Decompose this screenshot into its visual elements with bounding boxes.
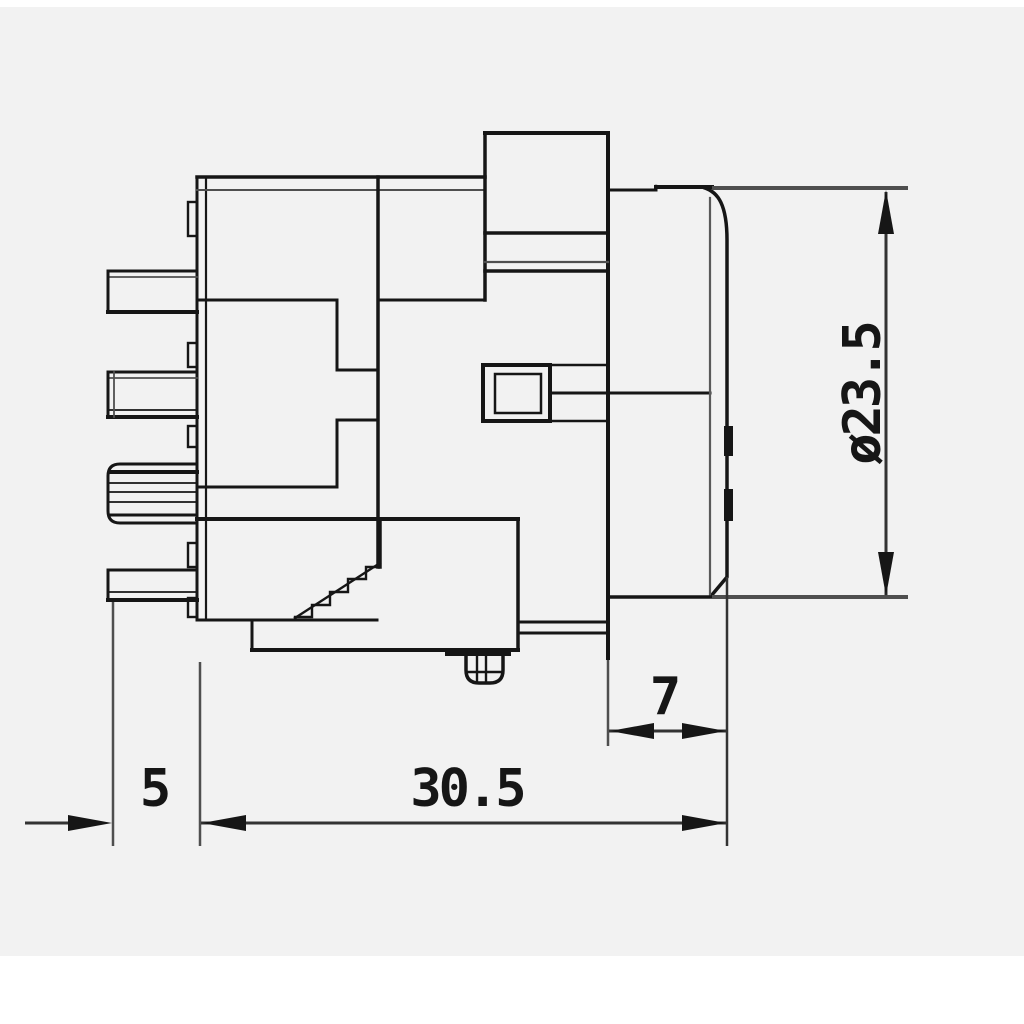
dimension-label-front-depth: 7 [650, 667, 678, 727]
barrel-detent-mark [724, 489, 733, 521]
dimension-label-body-length: 30.5 [410, 759, 523, 819]
dimension-label-rear-offset: 5 [140, 759, 168, 819]
drawing-canvas: ø23.5 7 5 30.5 [0, 0, 1024, 1024]
technical-drawing: ø23.5 7 5 30.5 [0, 0, 1024, 1024]
barrel-detent-mark [724, 426, 733, 456]
dimension-label-diameter: ø23.5 [833, 323, 893, 465]
